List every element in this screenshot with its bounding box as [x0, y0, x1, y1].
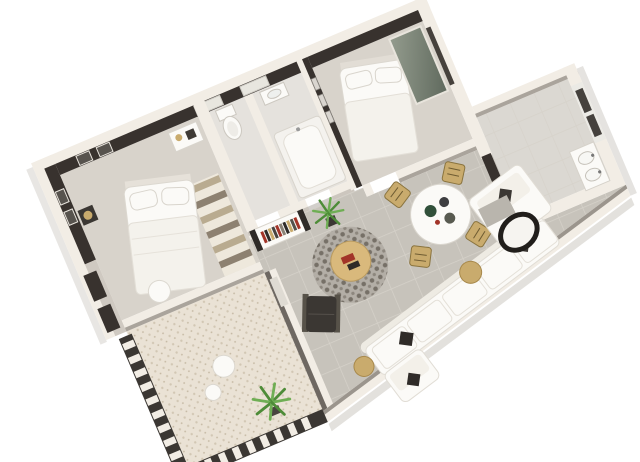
armchair [302, 294, 341, 333]
throw-pillow [407, 373, 421, 387]
pillow [375, 67, 402, 83]
throw-pillow [399, 331, 414, 346]
pillow [161, 187, 189, 205]
dining-chair [409, 245, 431, 267]
bed-1 [123, 173, 206, 295]
dining-chair [442, 161, 466, 185]
floor-plan-canvas [0, 0, 640, 462]
floor-plan-render [0, 0, 640, 462]
bed2-duvet [344, 92, 419, 162]
